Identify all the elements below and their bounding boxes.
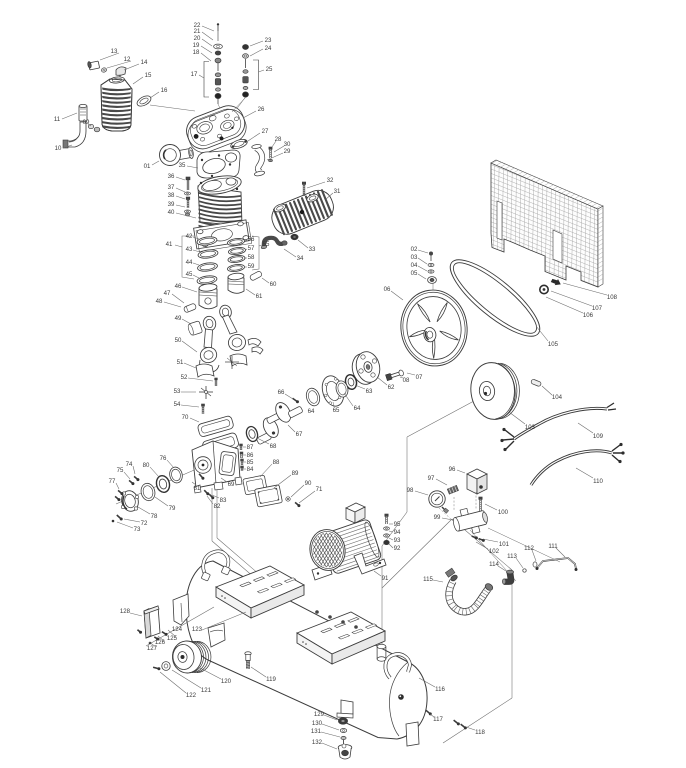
svg-text:52: 52 xyxy=(181,374,188,381)
svg-text:53: 53 xyxy=(174,388,181,395)
svg-text:57: 57 xyxy=(248,245,255,252)
svg-text:80: 80 xyxy=(143,462,150,469)
svg-text:101: 101 xyxy=(499,541,510,548)
svg-text:111: 111 xyxy=(548,543,558,550)
svg-text:47: 47 xyxy=(164,290,171,297)
svg-text:84: 84 xyxy=(247,466,254,473)
svg-text:110: 110 xyxy=(593,478,603,485)
svg-text:27: 27 xyxy=(262,128,269,135)
svg-text:29: 29 xyxy=(284,148,291,155)
svg-text:16: 16 xyxy=(161,87,168,94)
svg-text:108: 108 xyxy=(607,294,618,301)
svg-text:06: 06 xyxy=(384,286,391,293)
svg-text:78: 78 xyxy=(151,513,158,520)
svg-text:105: 105 xyxy=(548,341,559,348)
svg-text:45: 45 xyxy=(186,271,193,278)
svg-text:83: 83 xyxy=(220,497,227,504)
svg-text:60: 60 xyxy=(270,281,277,288)
svg-text:98: 98 xyxy=(407,487,414,494)
svg-text:20: 20 xyxy=(194,35,201,42)
svg-text:92: 92 xyxy=(394,545,401,552)
svg-text:125: 125 xyxy=(167,635,178,642)
svg-text:08: 08 xyxy=(403,377,410,384)
svg-text:07: 07 xyxy=(416,374,423,381)
svg-text:123: 123 xyxy=(192,626,203,633)
svg-text:58: 58 xyxy=(248,254,255,261)
svg-text:118: 118 xyxy=(475,729,485,736)
svg-text:36: 36 xyxy=(168,173,175,180)
svg-text:85: 85 xyxy=(247,459,254,466)
svg-text:75: 75 xyxy=(117,467,124,474)
svg-text:89: 89 xyxy=(292,470,299,477)
svg-text:109: 109 xyxy=(593,433,604,440)
svg-text:64: 64 xyxy=(308,408,315,415)
svg-text:74: 74 xyxy=(126,461,133,468)
svg-text:66: 66 xyxy=(278,389,285,396)
svg-text:15: 15 xyxy=(145,72,152,79)
svg-text:28: 28 xyxy=(275,136,282,143)
svg-text:120: 120 xyxy=(221,678,232,685)
svg-text:115: 115 xyxy=(423,576,433,583)
svg-text:113: 113 xyxy=(507,553,517,560)
svg-text:55: 55 xyxy=(263,241,270,248)
svg-text:43: 43 xyxy=(186,246,193,253)
svg-text:124: 124 xyxy=(172,626,183,633)
svg-text:33: 33 xyxy=(309,246,316,253)
svg-text:17: 17 xyxy=(191,71,198,78)
svg-text:129: 129 xyxy=(314,711,325,718)
svg-text:14: 14 xyxy=(141,59,148,66)
svg-text:48: 48 xyxy=(156,298,163,305)
svg-text:65: 65 xyxy=(333,407,340,414)
svg-text:70: 70 xyxy=(182,414,189,421)
svg-text:86: 86 xyxy=(247,452,254,459)
svg-text:59: 59 xyxy=(248,263,255,270)
svg-text:71: 71 xyxy=(316,486,323,493)
svg-text:35: 35 xyxy=(179,162,186,169)
svg-text:91: 91 xyxy=(382,575,389,582)
svg-text:96: 96 xyxy=(449,466,456,473)
svg-text:10: 10 xyxy=(55,145,62,152)
svg-text:128: 128 xyxy=(120,608,131,615)
svg-text:23: 23 xyxy=(265,37,272,44)
svg-text:79: 79 xyxy=(169,505,176,512)
svg-text:121: 121 xyxy=(201,687,212,694)
svg-text:50: 50 xyxy=(175,337,182,344)
svg-text:18: 18 xyxy=(193,49,200,56)
svg-text:42: 42 xyxy=(186,233,193,240)
svg-text:82: 82 xyxy=(214,503,221,510)
svg-text:01: 01 xyxy=(144,163,151,170)
svg-text:11: 11 xyxy=(54,116,61,123)
svg-text:94: 94 xyxy=(394,529,401,536)
svg-text:64: 64 xyxy=(354,405,361,412)
svg-text:46: 46 xyxy=(175,283,182,290)
svg-text:77: 77 xyxy=(109,478,116,485)
svg-text:90: 90 xyxy=(305,480,312,487)
svg-text:49: 49 xyxy=(175,315,182,322)
svg-text:34: 34 xyxy=(297,255,304,262)
svg-text:54: 54 xyxy=(174,401,181,408)
svg-text:93: 93 xyxy=(394,537,401,544)
svg-text:100: 100 xyxy=(498,509,509,516)
svg-text:62: 62 xyxy=(388,384,395,391)
svg-text:88: 88 xyxy=(273,459,280,466)
svg-text:107: 107 xyxy=(592,305,603,312)
svg-text:114: 114 xyxy=(489,561,499,568)
svg-text:05: 05 xyxy=(411,270,418,277)
svg-text:104: 104 xyxy=(552,394,563,401)
svg-text:38: 38 xyxy=(168,192,175,199)
svg-text:04: 04 xyxy=(411,262,418,269)
svg-text:99: 99 xyxy=(434,514,441,521)
svg-text:72: 72 xyxy=(141,520,148,527)
svg-text:19: 19 xyxy=(193,42,200,49)
svg-text:87: 87 xyxy=(247,444,254,451)
svg-text:95: 95 xyxy=(394,521,401,528)
svg-text:76: 76 xyxy=(160,455,167,462)
svg-text:61: 61 xyxy=(256,293,263,300)
svg-text:39: 39 xyxy=(168,201,175,208)
svg-text:73: 73 xyxy=(134,526,141,533)
svg-text:24: 24 xyxy=(265,45,272,52)
svg-text:112: 112 xyxy=(524,545,534,552)
svg-text:37: 37 xyxy=(168,184,175,191)
svg-text:67: 67 xyxy=(296,431,303,438)
svg-text:03: 03 xyxy=(411,254,418,261)
svg-text:02: 02 xyxy=(411,246,418,253)
svg-text:127: 127 xyxy=(147,645,158,652)
svg-text:32: 32 xyxy=(327,177,334,184)
svg-text:21: 21 xyxy=(194,28,201,35)
svg-text:25: 25 xyxy=(266,66,273,73)
svg-text:131: 131 xyxy=(311,728,322,735)
svg-text:26: 26 xyxy=(258,106,265,113)
svg-text:30: 30 xyxy=(284,141,291,148)
svg-text:103: 103 xyxy=(525,424,536,431)
svg-text:102: 102 xyxy=(489,548,500,555)
svg-text:09: 09 xyxy=(83,119,90,126)
svg-text:81: 81 xyxy=(194,485,201,492)
svg-text:68: 68 xyxy=(270,443,277,450)
svg-text:69: 69 xyxy=(228,481,235,488)
svg-text:56: 56 xyxy=(248,236,255,243)
svg-text:41: 41 xyxy=(166,241,173,248)
svg-text:44: 44 xyxy=(186,259,193,266)
svg-text:116: 116 xyxy=(435,686,445,693)
svg-text:132: 132 xyxy=(312,739,323,746)
svg-text:106: 106 xyxy=(583,312,594,319)
svg-text:97: 97 xyxy=(428,475,435,482)
svg-text:51: 51 xyxy=(177,359,184,366)
svg-text:119: 119 xyxy=(266,676,276,683)
svg-text:63: 63 xyxy=(366,388,373,395)
svg-text:40: 40 xyxy=(168,209,175,216)
svg-text:122: 122 xyxy=(186,692,197,699)
svg-text:13: 13 xyxy=(111,48,118,55)
svg-text:117: 117 xyxy=(433,716,443,723)
svg-text:130: 130 xyxy=(312,720,323,727)
svg-text:31: 31 xyxy=(334,188,341,195)
